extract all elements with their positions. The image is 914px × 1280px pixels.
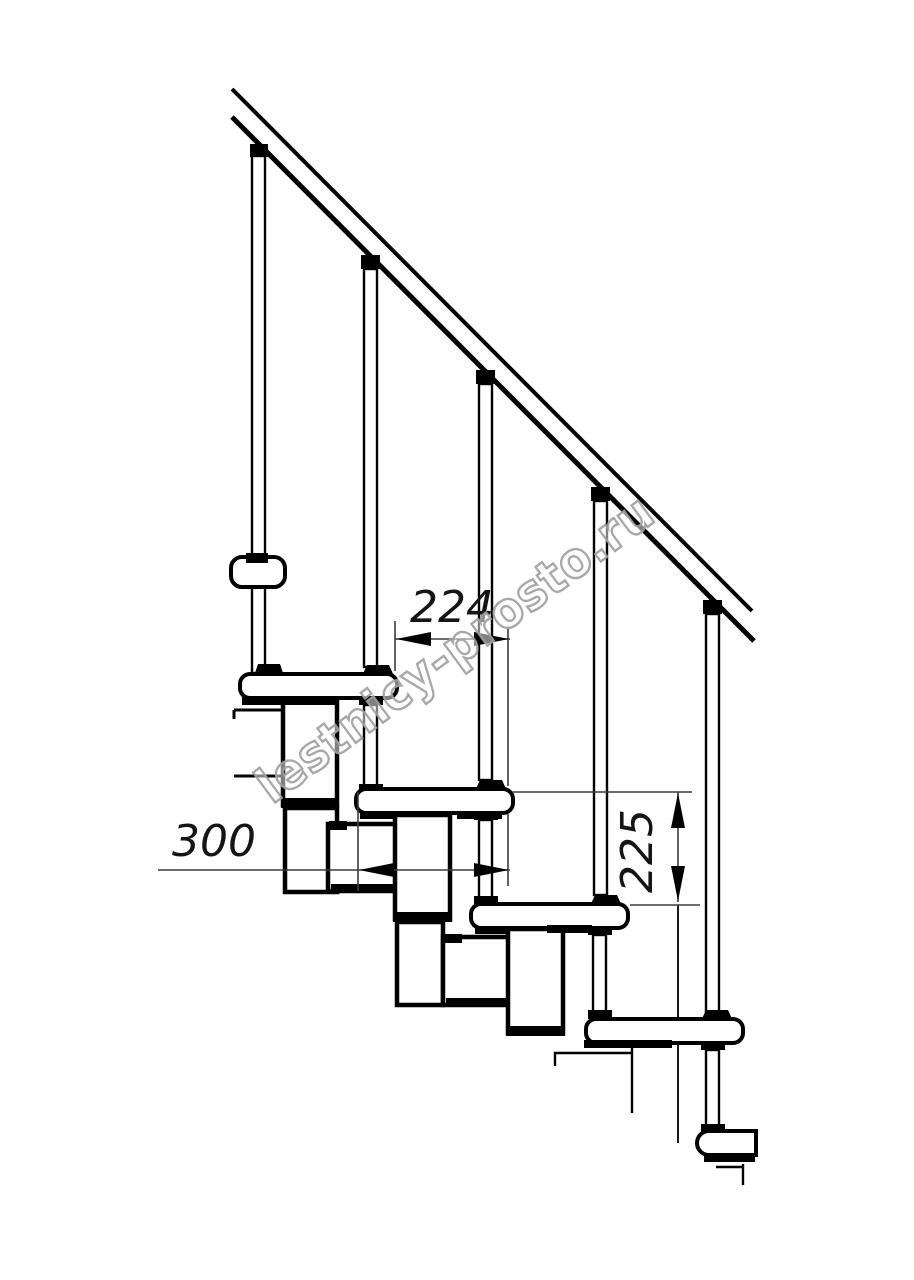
module-continuation-lines xyxy=(716,1164,743,1185)
upper-tread-connector xyxy=(246,553,268,563)
tread-truncated xyxy=(697,1131,756,1155)
baluster xyxy=(701,600,733,1021)
bolt xyxy=(701,1041,725,1133)
bolt-rod xyxy=(479,820,492,898)
module-tab xyxy=(329,821,347,830)
baluster-rod xyxy=(364,269,377,667)
arrowhead-down-icon xyxy=(671,866,685,901)
tread-mount xyxy=(704,1153,755,1162)
bolt xyxy=(474,811,498,905)
module-flange xyxy=(446,998,516,1007)
tread-mount xyxy=(360,811,393,819)
staircase-technical-drawing: 224 300 225 lestnicy-prosto.ru xyxy=(0,0,914,1280)
baluster-top-connector xyxy=(703,600,722,614)
module-tab xyxy=(444,934,462,943)
baluster xyxy=(361,255,394,676)
baluster xyxy=(250,144,284,676)
bolt-rod xyxy=(593,935,606,1013)
tread xyxy=(471,904,628,928)
dimension-rise-label: 225 xyxy=(612,809,663,893)
dimension-depth-label: 300 xyxy=(172,816,256,867)
bolt xyxy=(588,926,612,1019)
tread-mount xyxy=(475,926,508,934)
baluster-top-connector xyxy=(361,255,380,269)
module-flange xyxy=(506,1026,565,1036)
module-vertical xyxy=(508,929,563,1033)
baluster-rod xyxy=(252,156,265,673)
baluster-top-connector xyxy=(476,370,495,384)
arrowhead-up-icon xyxy=(671,793,685,828)
module-box xyxy=(328,824,403,891)
tread-mount xyxy=(457,811,502,819)
module-continuation-lines xyxy=(555,1043,632,1113)
module-flange xyxy=(331,884,402,893)
baluster-rod xyxy=(706,614,719,1012)
module-vertical xyxy=(395,815,450,919)
baluster-top-connector xyxy=(591,487,610,501)
tread-mount xyxy=(584,1040,672,1048)
tread-mount xyxy=(242,696,336,705)
module-vertical xyxy=(397,922,443,1005)
tread xyxy=(586,1019,743,1043)
tread-mount xyxy=(547,925,592,933)
drawing-svg: 224 300 225 lestnicy-prosto.ru xyxy=(0,0,914,1280)
tread xyxy=(356,789,513,813)
bolt-rod xyxy=(706,1050,719,1126)
